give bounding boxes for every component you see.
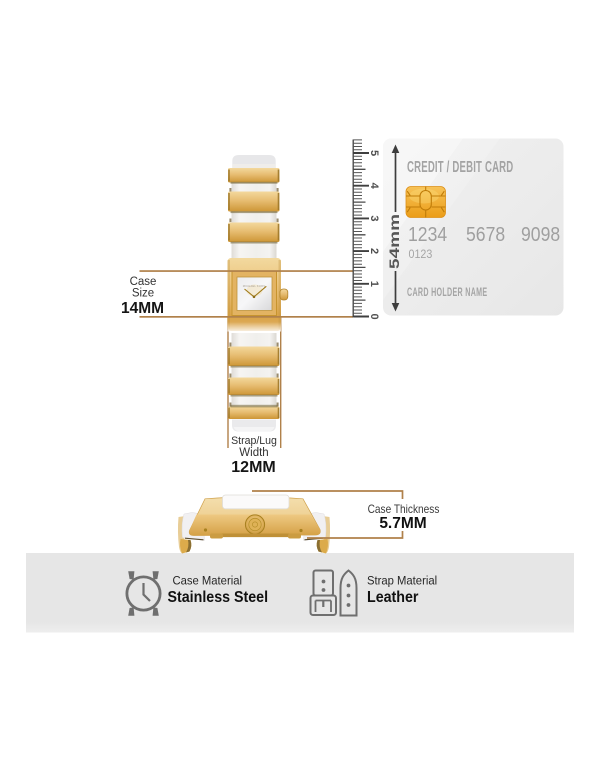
- svg-text:3: 3: [368, 215, 380, 221]
- svg-text:Strap Material: Strap Material: [367, 574, 437, 587]
- svg-text:Stainless Steel: Stainless Steel: [168, 590, 269, 607]
- svg-text:5: 5: [368, 150, 380, 156]
- svg-text:Case: Case: [130, 276, 157, 288]
- svg-text:14MM: 14MM: [121, 300, 164, 317]
- svg-text:9098: 9098: [521, 223, 560, 245]
- svg-text:Width: Width: [239, 447, 268, 459]
- svg-text:1234: 1234: [408, 223, 447, 245]
- svg-text:4: 4: [368, 183, 380, 190]
- svg-text:5.7MM: 5.7MM: [379, 515, 426, 532]
- svg-text:Case Material: Case Material: [173, 574, 242, 587]
- svg-text:2: 2: [368, 248, 380, 254]
- svg-text:MICHAEL KORS: MICHAEL KORS: [243, 284, 266, 288]
- svg-text:5678: 5678: [466, 223, 505, 245]
- svg-text:Leather: Leather: [367, 590, 419, 607]
- svg-text:0: 0: [368, 313, 380, 319]
- svg-text:Strap/Lug: Strap/Lug: [231, 435, 277, 447]
- svg-text:54mm: 54mm: [386, 214, 402, 269]
- svg-text:CREDIT / DEBIT CARD: CREDIT / DEBIT CARD: [407, 158, 513, 176]
- svg-text:12MM: 12MM: [231, 459, 275, 476]
- svg-text:CARD HOLDER NAME: CARD HOLDER NAME: [407, 286, 487, 299]
- svg-text:1: 1: [368, 281, 380, 287]
- svg-text:0123: 0123: [409, 249, 433, 261]
- svg-text:Size: Size: [132, 288, 154, 300]
